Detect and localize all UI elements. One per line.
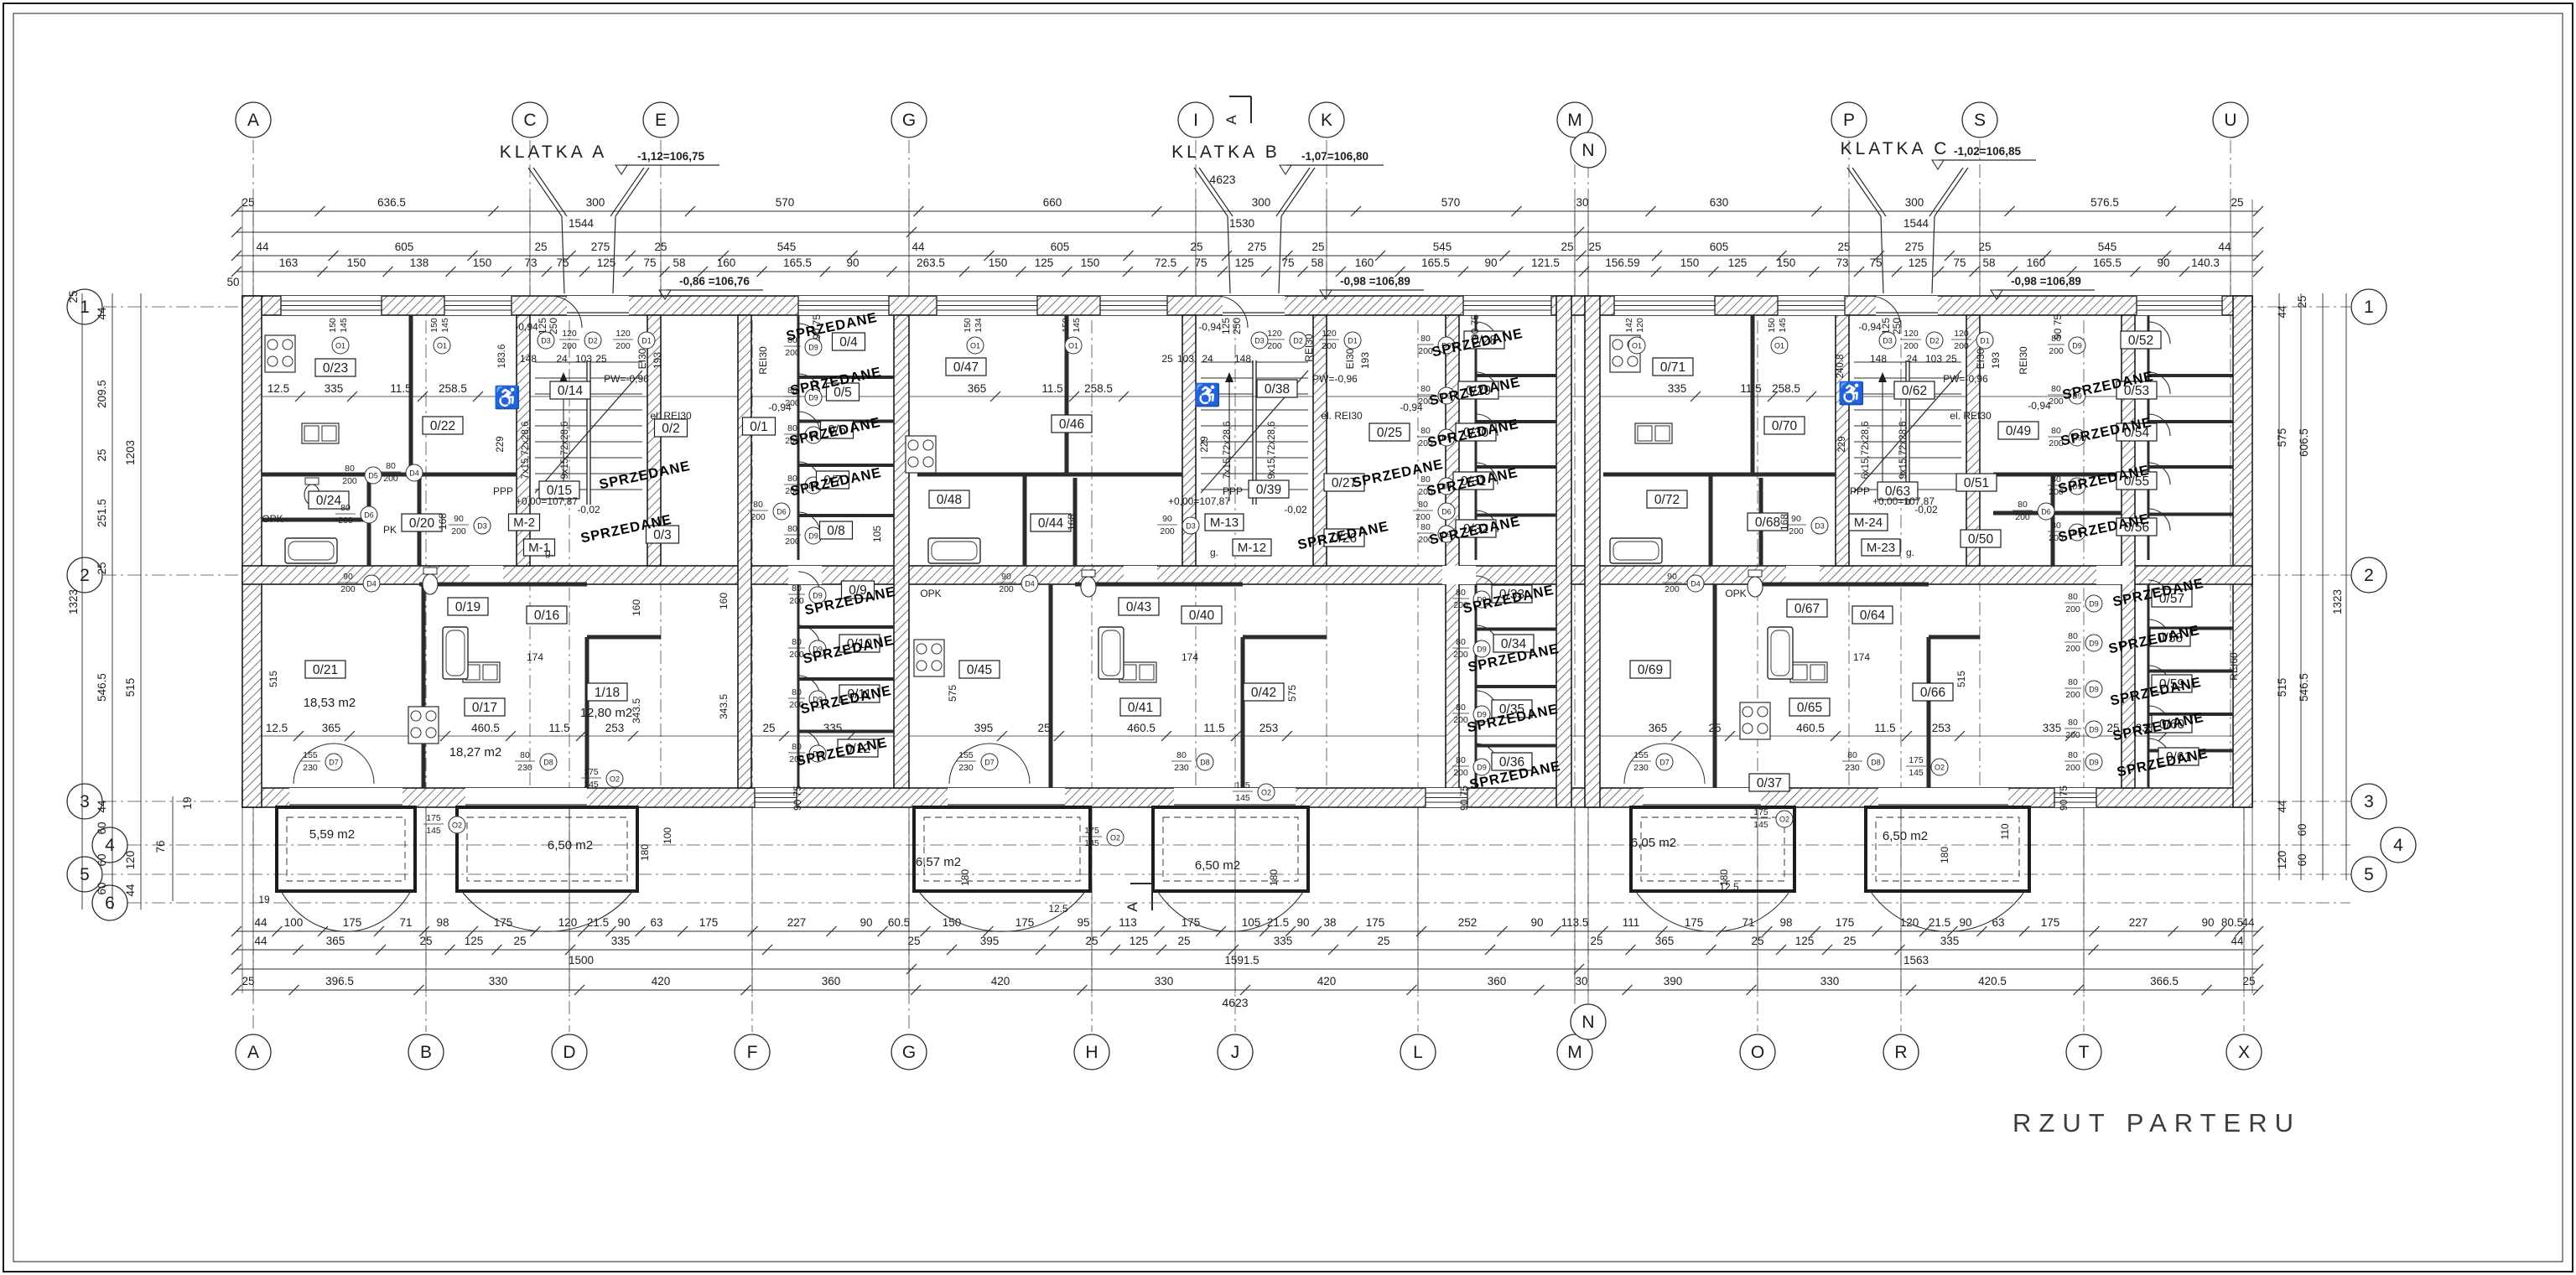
annotation: 515 — [1955, 671, 1967, 687]
dim-text: 125 — [1728, 257, 1748, 269]
dim-text: 95 — [1077, 916, 1089, 929]
room-number: 0/70 — [1772, 419, 1798, 433]
door-tag-label: D2 — [1293, 337, 1303, 345]
door-size: 175 — [1235, 780, 1250, 790]
dim-text: 1500 — [569, 954, 594, 967]
door-tag-label: O2 — [610, 775, 620, 784]
dim-text: 63 — [1992, 916, 2004, 929]
annotation: 125 — [1220, 318, 1232, 334]
dim-text: 58 — [1311, 257, 1323, 269]
dim-text: 160 — [717, 257, 736, 269]
door-size: 120 — [562, 329, 577, 339]
dim-text: 98 — [1779, 916, 1792, 929]
elevation-text: -1,12=106,75 — [637, 150, 704, 163]
stair-note: 229 — [1200, 436, 1210, 452]
dim-text: 253 — [605, 722, 625, 734]
annotation: 103 — [575, 353, 592, 365]
annotation: 103 — [1177, 353, 1194, 365]
terrace — [914, 807, 1090, 891]
dim-text: 25 — [907, 935, 920, 947]
annotation: 250 — [1231, 318, 1243, 334]
door-size: 200 — [615, 341, 631, 351]
door-size: 175 — [1084, 826, 1099, 836]
dim-text: 90 — [2157, 257, 2169, 269]
cell-door-size: 80 — [2068, 750, 2078, 760]
door-size: 200 — [383, 474, 398, 484]
door-tag-label: D3 — [1883, 337, 1893, 345]
dim-text: 630 — [1710, 196, 1729, 209]
cell-door-size: 200 — [2065, 644, 2080, 654]
annotation: 193 — [1359, 352, 1371, 369]
dim-text: 258.5 — [1772, 382, 1800, 395]
grid-bubble-top-N-label: N — [1581, 141, 1594, 160]
annotation: 575 — [1286, 685, 1298, 702]
stair-note: 9x15,72x28,6 — [1898, 421, 1909, 479]
dim-text: 545 — [777, 241, 797, 253]
dim-text: 11.5 — [390, 382, 411, 395]
window-size: 134 — [974, 318, 984, 333]
canopy-line — [533, 168, 567, 216]
door-size: 200 — [1954, 341, 1969, 351]
dim-text-right: 60 — [2296, 853, 2309, 866]
dim-text: 12.5 — [267, 382, 289, 395]
wheelchair-icon: ♿ — [1838, 381, 1865, 406]
dim-text-left: 25 — [67, 290, 80, 303]
room-number: 0/19 — [455, 600, 480, 614]
annotation: +0,00=107,87 — [516, 495, 578, 507]
annotation: 148 — [1234, 353, 1251, 365]
dim-text: 258.5 — [439, 382, 467, 395]
annotation: 12.5 — [1048, 903, 1068, 915]
grid-bubble-bottom-H-label: H — [1085, 1043, 1098, 1062]
room-number: 0/68 — [1755, 516, 1780, 530]
dim-text: 175 — [1015, 916, 1035, 929]
annotation: PPP — [493, 485, 513, 497]
room-area: 6,50 m2 — [1195, 858, 1240, 873]
annotation: -0,02 — [577, 504, 600, 516]
dim-text: 58 — [673, 257, 685, 269]
cell-door-size: 200 — [2049, 346, 2064, 356]
sold-stamp: SPRZEDANE — [2057, 463, 2151, 497]
annotation: 148 — [1870, 353, 1887, 365]
annotation: g. — [1210, 547, 1218, 558]
dim-text: 365 — [1649, 722, 1668, 734]
dim-text: 113 — [1119, 916, 1137, 929]
dim-text: 1530 — [1229, 217, 1254, 230]
dim-text: 366.5 — [2150, 975, 2179, 987]
spine-door-gap — [1124, 566, 1157, 584]
dim-text: 90 — [617, 916, 630, 929]
dim-text: 420.5 — [1978, 975, 2007, 987]
room-number: 0/69 — [1638, 663, 1663, 677]
dim-text: 25 — [1837, 241, 1850, 253]
door-tag-label: O1 — [1068, 342, 1078, 350]
annotation: REI60 — [2228, 652, 2240, 681]
dim-text: 25 — [1037, 722, 1050, 734]
spine-door-gap — [1442, 566, 1476, 584]
elevation-text: -1,07=106,80 — [1301, 150, 1368, 163]
door-tag-label: O2 — [1261, 789, 1271, 797]
door-tag-label: D2 — [1929, 337, 1940, 345]
dim-text: 75 — [643, 257, 656, 269]
dim-text: 25 — [1978, 241, 1991, 253]
cell-door-size: 80 — [792, 742, 802, 752]
sold-stamp: SPRZEDANE — [2057, 511, 2151, 546]
dim-text: 25 — [1377, 935, 1389, 947]
total-dim: 4623 — [1222, 996, 1248, 1009]
door-tag-label: D3 — [1254, 337, 1265, 345]
cell-door-size: 80 — [2068, 718, 2078, 728]
cell-door-size: 200 — [2049, 396, 2064, 407]
door-size: 90 — [343, 572, 353, 582]
door-size: 200 — [1789, 526, 1804, 536]
dim-text: 175 — [2041, 916, 2060, 929]
elevation-triangle — [1932, 160, 1944, 169]
room-number: 0/67 — [1794, 602, 1820, 616]
dim-text: 160 — [2027, 257, 2046, 269]
cell-door-size: 200 — [785, 536, 800, 547]
door-size: 145 — [426, 826, 441, 836]
dim-text: 335 — [611, 935, 631, 947]
cell-door-size: 80 — [1456, 637, 1466, 647]
cell-door-size: 80 — [787, 524, 797, 534]
toilet-tank — [423, 568, 437, 574]
canopy-line — [1881, 216, 1883, 293]
sold-stamp: SPRZEDANE — [789, 465, 883, 500]
dim-text-left: 76 — [154, 840, 167, 853]
annotation: 343.5 — [631, 698, 642, 723]
room-number: 0/71 — [1660, 360, 1685, 375]
dim-text: 75 — [1953, 257, 1966, 269]
stairwell-label: KLATKA A — [500, 143, 608, 162]
dim-text-right: 44 — [2276, 305, 2288, 319]
door-size: 120 — [1267, 329, 1282, 339]
annotation: g. — [1906, 547, 1914, 558]
dim-text: 605 — [1710, 241, 1729, 253]
dim-text-left: 44 — [96, 307, 108, 320]
elevation-triangle — [615, 165, 627, 174]
dim-text-right: 575 — [2276, 428, 2288, 448]
dim-text: 25 — [2242, 975, 2255, 987]
dim-text-right: 25 — [2296, 295, 2309, 308]
annotation: +0,00=107,87 — [1168, 495, 1230, 507]
door-tag-label: D6 — [364, 511, 374, 520]
dim-text: 98 — [436, 916, 449, 929]
stair-note: 9x15,72x28,6 — [1267, 421, 1277, 479]
stair-note: 183.6 — [497, 345, 507, 369]
dim-text: 72.5 — [1155, 257, 1176, 269]
floor-plan-drawing: ACEGIKMNPSUABDFGHJLMNORTX123456123452563… — [0, 0, 2576, 1275]
dim-text-left: 25 — [96, 448, 108, 461]
elevation-text: -0,98 =106,89 — [1340, 275, 1410, 288]
cell-door-size: 200 — [2065, 763, 2080, 773]
door-tag-label: D3 — [477, 522, 487, 531]
dim-text: 21.5 — [1267, 916, 1289, 929]
dim-text: 60.5 — [888, 916, 910, 929]
annotation: 24 — [1906, 353, 1918, 365]
annotation: EI30 — [636, 348, 648, 369]
annotation: 174 — [527, 651, 543, 663]
window-size: 142 — [1624, 318, 1634, 333]
dim-text-left: 50 — [226, 276, 239, 288]
dim-text: 150 — [473, 257, 492, 269]
dim-text: 30 — [1576, 196, 1588, 209]
door-tag-label: D8 — [543, 759, 553, 767]
door-tag-label: D7 — [329, 759, 339, 767]
dim-text: 156.59 — [1605, 257, 1639, 269]
cell-door-size: 80 — [792, 687, 802, 697]
stair-note: 229 — [1837, 436, 1847, 452]
elevation-text: -0,98 =106,89 — [2011, 275, 2081, 288]
dim-text: 335 — [1940, 935, 1960, 947]
dim-text: 12.5 — [266, 722, 288, 734]
grid-bubble-top-K-label: K — [1321, 111, 1332, 130]
dim-text: 25 — [1190, 241, 1202, 253]
toilet-tank — [305, 478, 319, 485]
kitchen-sink — [1119, 662, 1156, 682]
canopy-line — [1935, 168, 1968, 216]
drawing-sheet: ACEGIKMNPSUABDFGHJLMNORTX123456123452563… — [0, 0, 2576, 1275]
door-size: 90 — [1162, 514, 1172, 524]
cell-door-size: 80 — [1456, 755, 1466, 765]
dim-text: 300 — [1905, 196, 1924, 209]
stair-note: 7x15,72x28,6 — [1223, 421, 1233, 479]
grid-bubble-left-4-label: 4 — [105, 836, 115, 855]
door-size: 80 — [1176, 750, 1187, 760]
stairwell-label: KLATKA B — [1171, 143, 1280, 162]
door-tag-label: D2 — [588, 337, 598, 345]
dim-text-left: 60 — [96, 821, 108, 834]
grid-bubble-right-3-label: 3 — [2364, 792, 2374, 811]
drawing-title: RZUT PARTERU — [2012, 1108, 2301, 1138]
door-tag-label: O1 — [1632, 342, 1642, 350]
dim-text: 75 — [1281, 257, 1294, 269]
door-size: 90 — [1791, 514, 1801, 524]
door-size: 80 — [345, 464, 355, 474]
door-size: 80 — [1847, 750, 1857, 760]
door-size: 200 — [1267, 341, 1282, 351]
annotation: 168 — [1066, 514, 1078, 531]
room-number: 0/24 — [316, 494, 342, 508]
grid-bubble-right-4-label: 4 — [2393, 836, 2403, 855]
dim-text: 576.5 — [2090, 196, 2119, 209]
room-number: 0/8 — [827, 524, 845, 538]
annotation: -0,94 — [1198, 321, 1222, 333]
dim-text: 1544 — [569, 217, 595, 230]
door-size: 90 — [1001, 572, 1011, 582]
door-tag-label: D4 — [1690, 580, 1701, 588]
door-tag-label: D9 — [808, 394, 818, 402]
grid-bubble-bottom-X-label: X — [2238, 1043, 2250, 1062]
dim-text-left: 44 — [96, 800, 108, 813]
cell-door-size: 200 — [789, 596, 804, 606]
door-tag-label: O1 — [437, 342, 447, 350]
grid-bubble-left-5-label: 5 — [80, 865, 90, 884]
dim-text: 1563 — [1903, 954, 1929, 967]
grid-bubble-top-I-label: I — [1193, 111, 1198, 130]
grid-bubble-bottom-F-label: F — [747, 1043, 758, 1062]
room-number: 0/52 — [2128, 334, 2153, 348]
room-area: 6,50 m2 — [1883, 829, 1928, 843]
door-tag-label: D4 — [1025, 580, 1035, 588]
door-size: 145 — [1235, 793, 1250, 803]
terrace-canopy-dashed — [924, 817, 1080, 881]
dim-text: 360 — [822, 975, 841, 987]
dim-text: 25 — [1588, 241, 1601, 253]
wheelchair-icon: ♿ — [494, 385, 521, 410]
canopy-line — [1281, 168, 1315, 216]
annotation: 90 75 — [792, 785, 803, 811]
door-size: 230 — [1633, 763, 1649, 773]
room-number: 0/40 — [1189, 609, 1215, 623]
door-size: 80 — [1418, 500, 1428, 510]
dim-text: 111 — [1623, 916, 1640, 929]
room-area: 18,53 m2 — [304, 696, 356, 710]
dim-text: 75 — [1194, 257, 1207, 269]
door-size: 80 — [753, 500, 763, 510]
annotation: REI30 — [757, 346, 769, 375]
dim-text: 25 — [1590, 935, 1602, 947]
annotation: 90 75 — [2052, 314, 2064, 339]
terrace — [1153, 807, 1308, 891]
dim-text: 165.5 — [2093, 257, 2122, 269]
dim-text: 80.5 — [2221, 916, 2243, 929]
dim-text-left: 44 — [124, 884, 137, 897]
grid-bubble-bottom-B-label: B — [420, 1043, 432, 1062]
kitchen-sink — [1790, 662, 1827, 682]
door-tag-label: O2 — [1935, 764, 1945, 772]
door-size: 230 — [958, 763, 974, 773]
annotation: el. REI30 — [650, 410, 692, 422]
annotation: 25 — [1945, 353, 1957, 365]
door-size: 80 — [340, 503, 351, 513]
annotation: 100 — [662, 827, 673, 844]
window-size: 120 — [1635, 318, 1645, 333]
annotation: OPK — [262, 513, 283, 525]
room-number: 0/45 — [967, 663, 992, 677]
wall — [1313, 315, 1327, 566]
dim-text: 330 — [489, 975, 508, 987]
room-number: 0/42 — [1251, 686, 1276, 700]
canopy-line — [528, 168, 562, 216]
door-tag-label: D9 — [2089, 640, 2099, 648]
door-tag-label: D9 — [808, 532, 818, 541]
annotation: REI30 — [2018, 346, 2029, 375]
dim-text: 227 — [787, 916, 807, 929]
dim-text: 227 — [2129, 916, 2148, 929]
stair-arrow-head — [1225, 372, 1233, 382]
grid-bubble-top-U-label: U — [2224, 111, 2236, 130]
dim-text: 11.5 — [1203, 722, 1224, 734]
door-size: 230 — [1845, 763, 1860, 773]
toilet — [1081, 577, 1096, 597]
dim-text: 253 — [1932, 722, 1951, 734]
stair-note: 240.8 — [1836, 355, 1846, 379]
dim-text: 258.5 — [1084, 382, 1113, 395]
total-dim: 4623 — [1209, 173, 1235, 186]
annotation: -0,94 — [768, 402, 792, 413]
annotation: EI30 — [1975, 348, 1987, 369]
dim-text: 636.5 — [377, 196, 406, 209]
dim-text: 335 — [2043, 722, 2062, 734]
door-tag-label: D7 — [984, 759, 995, 767]
door-tag-label: D9 — [2089, 600, 2099, 609]
spine-door-gap — [470, 566, 503, 584]
dim-text: 165.5 — [783, 257, 812, 269]
dim-text: 121.5 — [1531, 257, 1560, 269]
dim-text-right: 1323 — [2331, 589, 2344, 614]
dim-text: 21.5 — [587, 916, 609, 929]
stair-note: 7x15,72x28,6 — [521, 421, 531, 479]
dim-text: 335 — [1668, 382, 1687, 395]
dim-text: 335 — [1274, 935, 1293, 947]
stair-note: 229 — [496, 436, 506, 452]
dim-text: 90 — [1530, 916, 1543, 929]
grid-bubble-bottom-N-label: N — [1581, 1013, 1594, 1032]
dim-text: 300 — [586, 196, 605, 209]
window-size: 145 — [339, 318, 349, 333]
door-tag-label: D1 — [641, 337, 652, 345]
section-label: A — [1223, 115, 1239, 125]
dim-text: 125 — [1795, 935, 1815, 947]
grid-bubble-top-P-label: P — [1843, 111, 1855, 130]
door-size: 200 — [2015, 512, 2030, 522]
dim-text: 175 — [699, 916, 719, 929]
room-number: 0/50 — [1968, 532, 1994, 547]
dim-text-right: 606.5 — [2298, 428, 2310, 457]
annotation: 250 — [1891, 318, 1903, 334]
stair-note: 9x15,72x28,6 — [560, 421, 570, 479]
room-number: 0/49 — [2006, 424, 2031, 438]
annotation: 148 — [520, 353, 537, 365]
annotation: 25 — [595, 353, 607, 365]
room-area: 12,80 m2 — [580, 706, 633, 720]
dim-text: 395 — [974, 722, 994, 734]
grid-bubble-left-3-label: 3 — [80, 792, 90, 811]
dim-text-right: 120 — [2276, 851, 2288, 870]
room-number: 0/1 — [750, 420, 768, 434]
dim-text: 460.5 — [1796, 722, 1825, 734]
grid-bubble-top-M-label: M — [1567, 111, 1582, 130]
dim-text: 21.5 — [1929, 916, 1950, 929]
dim-text: 44 — [254, 935, 267, 947]
annotation: 160 — [631, 599, 642, 616]
dim-text-left: 19 — [181, 796, 194, 809]
stair-arrow-head — [559, 372, 568, 382]
annotation: -0,02 — [1914, 504, 1938, 516]
spine-door-gap — [1786, 566, 1820, 584]
door-size: 175 — [584, 767, 599, 777]
dim-text: 390 — [1664, 975, 1683, 987]
dim-text: 120 — [558, 916, 578, 929]
window-size: 145 — [1072, 318, 1082, 333]
room-area: 6,57 m2 — [916, 855, 961, 869]
dim-text: 44 — [2231, 935, 2244, 947]
door-tag-label: D6 — [2041, 508, 2051, 516]
grid-bubble-bottom-L-label: L — [1413, 1043, 1423, 1062]
door-tag-label: D9 — [813, 592, 823, 600]
room-number: 0/48 — [937, 493, 962, 507]
dim-text: 73 — [524, 257, 537, 269]
door-size: 80 — [520, 750, 530, 760]
window-size: 150 — [1767, 318, 1777, 333]
grid-bubble-top-A-label: A — [247, 111, 259, 130]
door-tag-label: O2 — [1779, 816, 1789, 824]
grid-bubble-top-C-label: C — [523, 111, 536, 130]
dim-text-right: 515 — [2276, 678, 2288, 697]
door-tag-label: D9 — [2072, 342, 2082, 350]
dim-text: 25 — [1561, 241, 1573, 253]
